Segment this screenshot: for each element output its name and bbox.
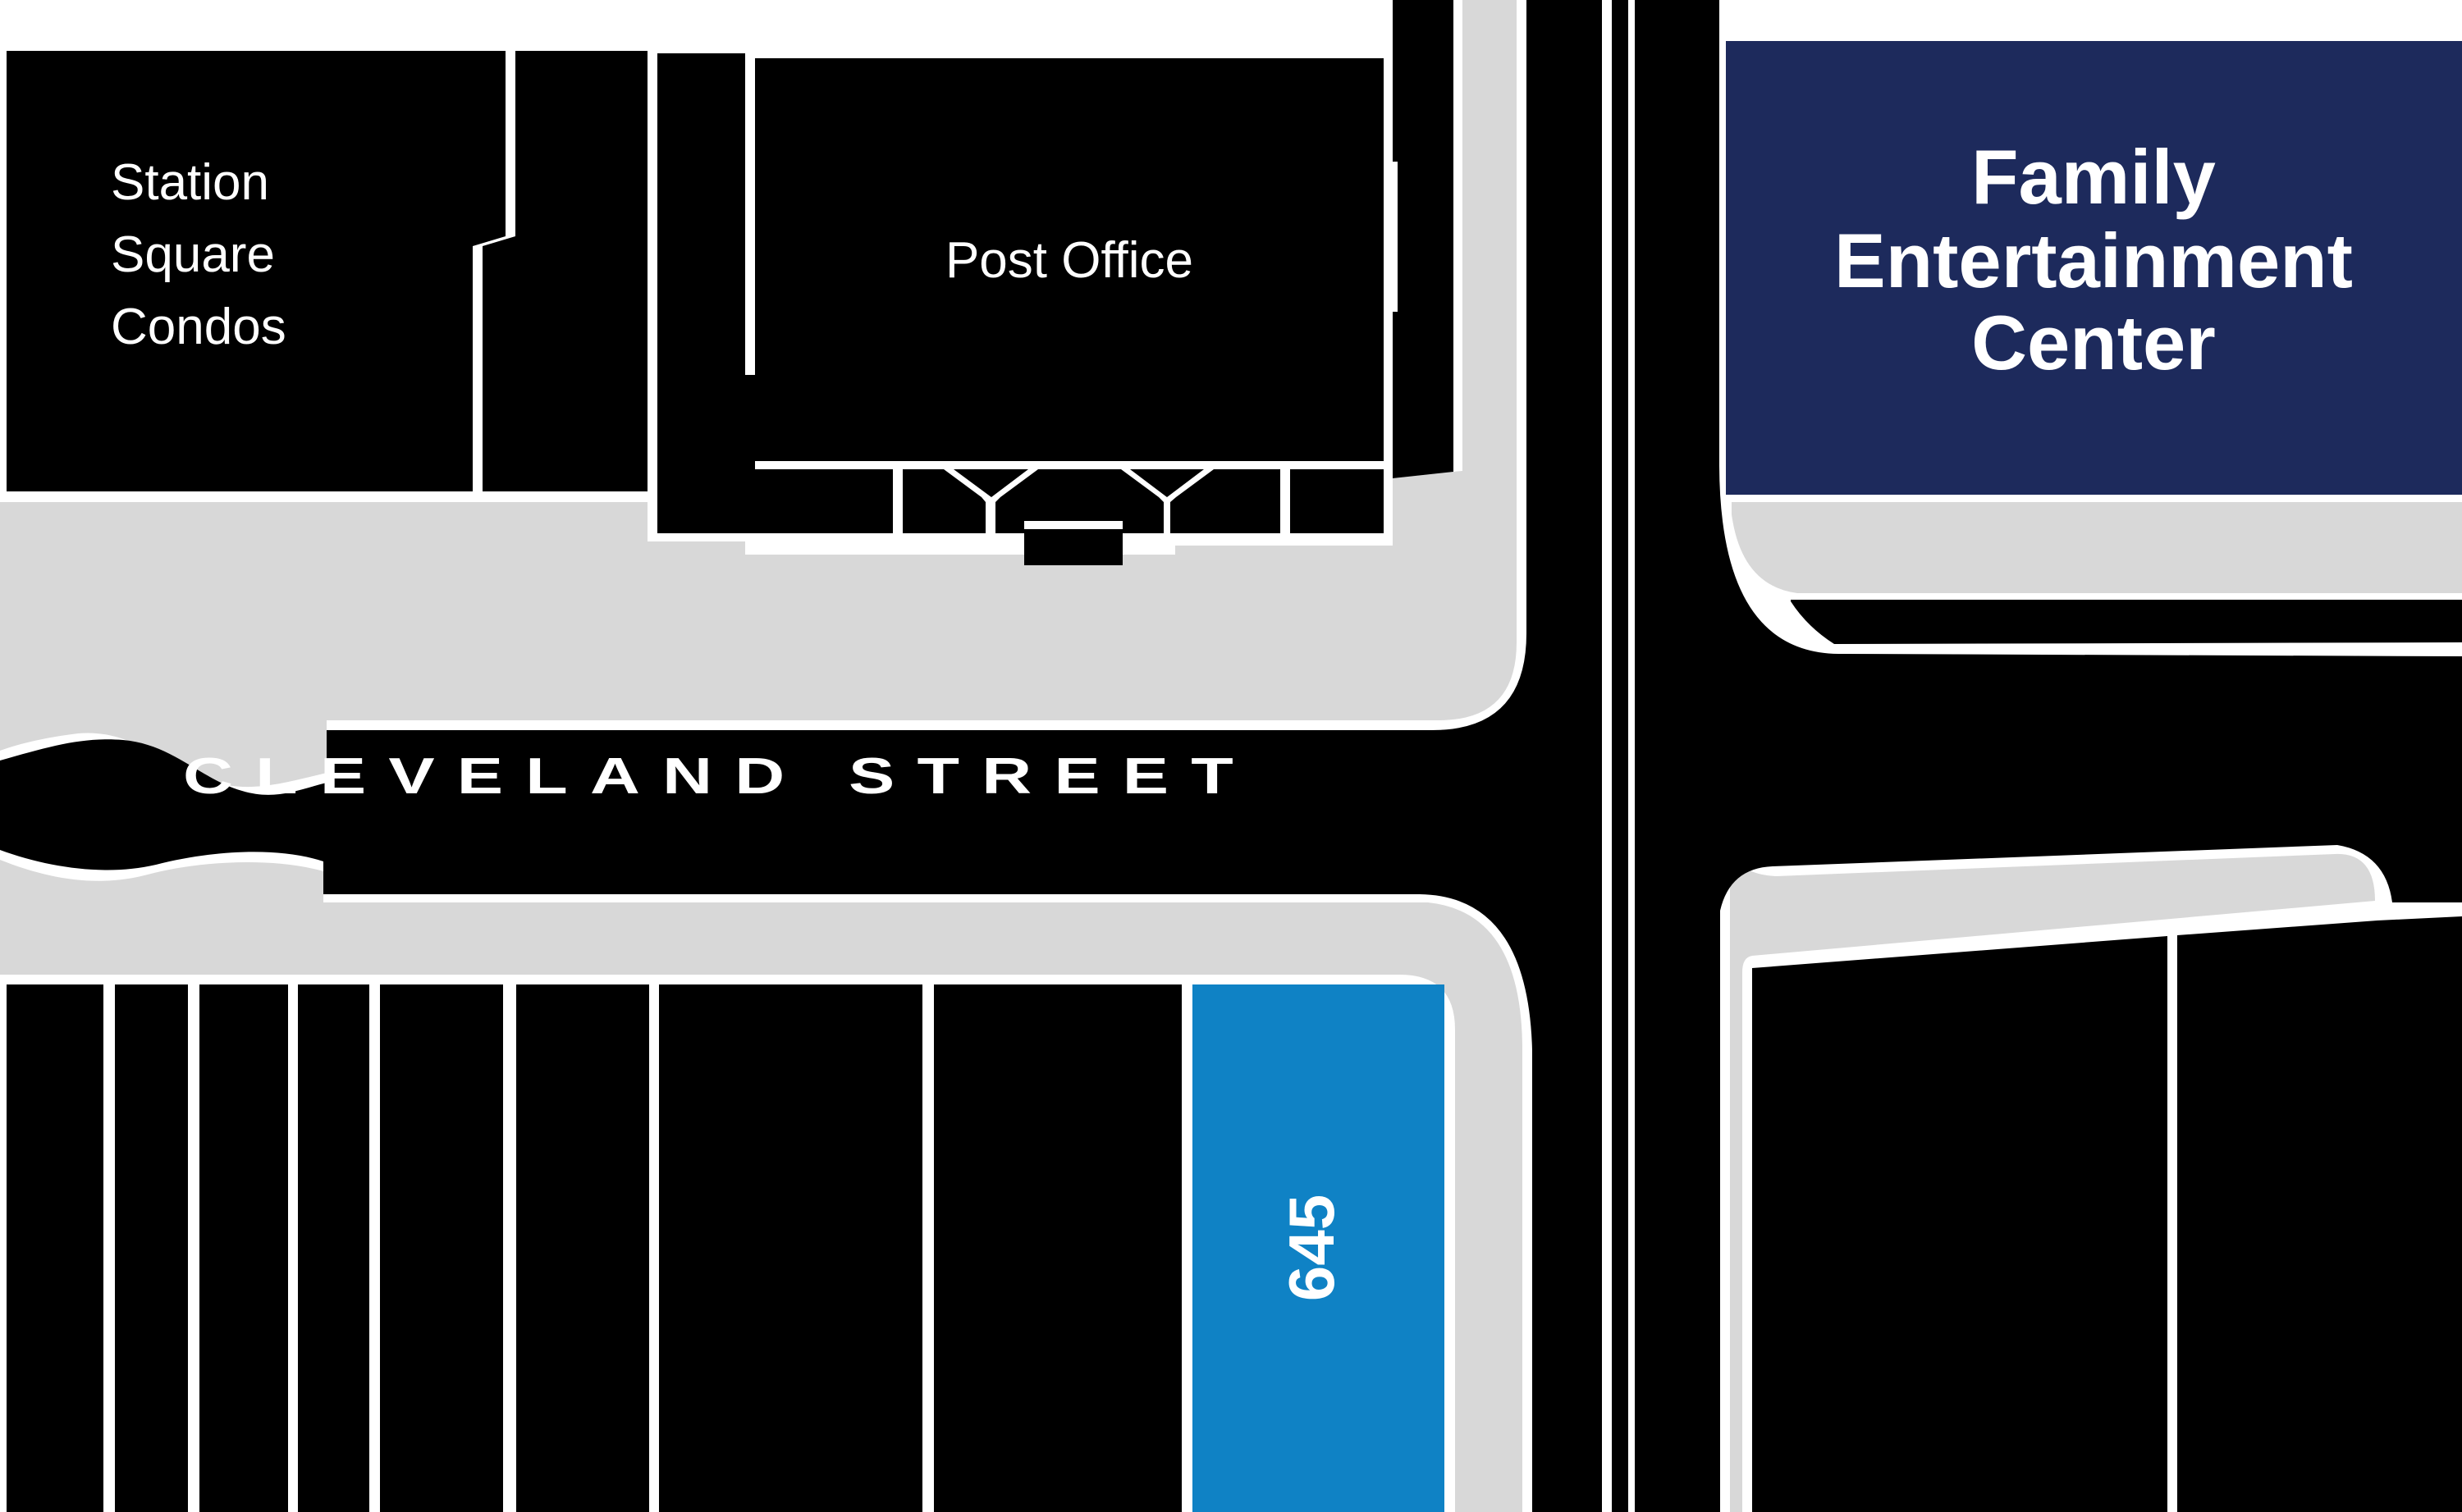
label-parcel-645: 645 (1275, 1195, 1348, 1301)
building-post-office-west-link (745, 375, 755, 533)
parcels-southeast (1752, 916, 2462, 1512)
parcel (7, 984, 103, 1512)
sidewalk-fec (1732, 502, 2462, 593)
label-station-square-condos-line3: Condos (111, 299, 286, 355)
parcel (1752, 936, 2167, 1512)
parcels-southwest (7, 984, 1182, 1512)
building-narrow-west-of-post-office (657, 53, 745, 533)
parcel (934, 984, 1182, 1512)
site-map-container: Station Square Condos Post Office Family… (0, 0, 2462, 1512)
building-strip-below-fec-sidewalk (1791, 600, 2462, 644)
label-station-square-condos-line2: Square (111, 226, 275, 283)
parcel (2177, 916, 2462, 1512)
building-northeast-of-post-office (1393, 0, 1453, 478)
label-fec-line1: Family (1971, 134, 2216, 220)
building-strip-east-of-condos (483, 51, 648, 491)
label-station-square-condos-line1: Station (111, 154, 269, 211)
post-office-entrance-block-4 (1290, 469, 1384, 533)
lane-divider-line-west (1602, 0, 1612, 1512)
building-northeast-notch (1393, 162, 1398, 312)
label-fec-line2: Entertainment (1834, 217, 2353, 304)
parcel (115, 984, 188, 1512)
parcel (298, 984, 369, 1512)
building-post-office-annex-west (755, 469, 893, 533)
parcel (199, 984, 288, 1512)
label-post-office: Post Office (945, 232, 1193, 289)
parcel (516, 984, 649, 1512)
label-fec-line3: Center (1971, 299, 2216, 386)
site-map: Station Square Condos Post Office Family… (0, 0, 2462, 1512)
post-office-entrance-block-2 (995, 469, 1164, 533)
post-office-entrance-porch (1024, 529, 1123, 565)
label-station-square-condos: Station Square Condos (111, 154, 286, 355)
lane-divider-line-east (1628, 0, 1635, 1512)
label-cleveland-street: CLEVELAND STREET (183, 748, 1256, 805)
parcel (380, 984, 503, 1512)
parcel (659, 984, 922, 1512)
